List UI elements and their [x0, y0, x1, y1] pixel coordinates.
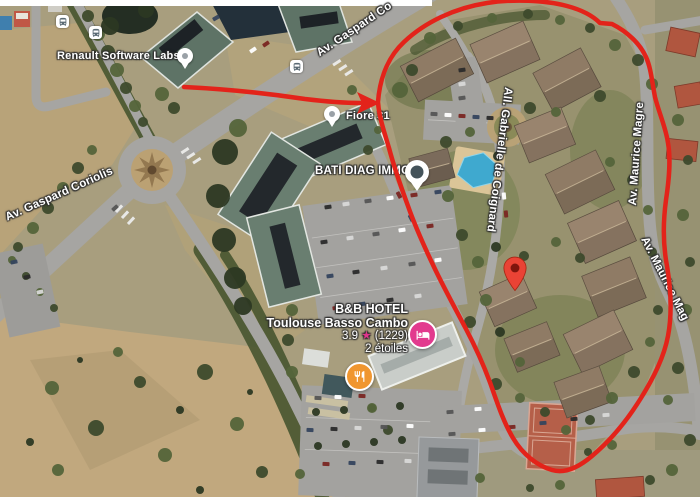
bus-icon	[292, 62, 302, 72]
poi-label-bati-diag[interactable]: BATI DIAG IMMO	[315, 165, 410, 177]
fiore-poi-pin[interactable]	[324, 106, 340, 122]
bati-diag-poi-pin[interactable]	[405, 160, 429, 184]
poi-label-renault[interactable]: Renault Software Labs	[57, 50, 180, 62]
hotel-review-count: (1229)	[375, 330, 408, 342]
destination-pin[interactable]	[502, 256, 528, 292]
hotel-marker[interactable]	[408, 320, 437, 349]
bus-icon	[91, 28, 101, 38]
satellite-map-canvas[interactable]	[0, 0, 700, 500]
fork-knife-icon	[353, 370, 366, 383]
hotel-name-line2: Toulouse Basso Cambo	[267, 317, 408, 331]
hotel-label-block[interactable]: B&B HOTEL Toulouse Basso Cambo 3.9 ★ (12…	[267, 303, 408, 355]
bed-icon	[416, 328, 430, 342]
hotel-rating-line: 3.9 ★ (1229)	[267, 330, 408, 343]
bus-stop-icon[interactable]	[89, 26, 102, 39]
hotel-name-line1: B&B HOTEL	[267, 303, 408, 317]
rating-star-icon: ★	[361, 330, 371, 342]
hotel-rating-value: 3.9	[342, 330, 358, 342]
roundabout	[118, 136, 186, 204]
hotel-category: 2 étoiles	[267, 343, 408, 356]
poi-label-fiore[interactable]: Fiore 31	[346, 110, 390, 122]
restaurant-marker[interactable]	[345, 362, 374, 391]
bus-stop-icon[interactable]	[290, 60, 303, 73]
bus-icon	[58, 17, 68, 27]
map-viewport[interactable]: Renault Software Labs Av. Gaspard Co Av.…	[0, 0, 700, 500]
renault-poi-pin[interactable]	[177, 48, 193, 64]
bus-stop-icon[interactable]	[56, 15, 69, 28]
